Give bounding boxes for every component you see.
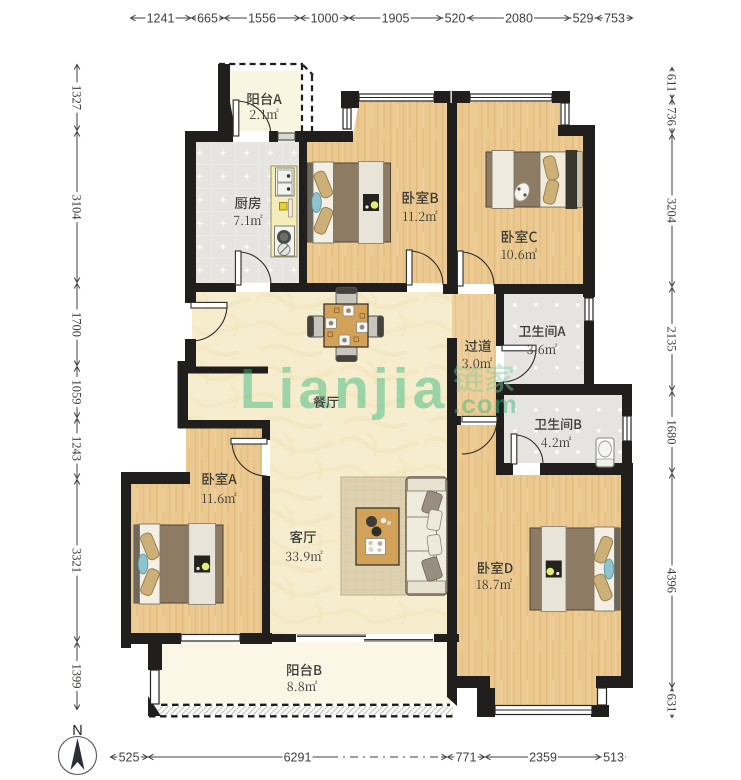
svg-text:Lianjia: Lianjia bbox=[240, 357, 449, 421]
svg-text:611: 611 bbox=[665, 74, 679, 92]
svg-text:1399: 1399 bbox=[70, 664, 84, 689]
svg-text:3321: 3321 bbox=[70, 548, 84, 573]
svg-text:529: 529 bbox=[573, 12, 594, 26]
svg-text:1243: 1243 bbox=[70, 436, 84, 461]
svg-text:.com: .com bbox=[453, 389, 518, 419]
svg-text:771: 771 bbox=[456, 751, 477, 765]
svg-text:1680: 1680 bbox=[665, 420, 679, 445]
svg-text:1241: 1241 bbox=[147, 12, 175, 26]
svg-text:1905: 1905 bbox=[382, 12, 410, 26]
svg-text:3204: 3204 bbox=[665, 198, 679, 224]
svg-text:1556: 1556 bbox=[248, 12, 276, 26]
svg-text:1059: 1059 bbox=[70, 380, 84, 405]
svg-text:6291: 6291 bbox=[284, 751, 312, 765]
svg-text:2359: 2359 bbox=[529, 751, 557, 765]
svg-text:631: 631 bbox=[665, 694, 679, 713]
svg-text:4396: 4396 bbox=[665, 568, 679, 593]
svg-text:2080: 2080 bbox=[505, 12, 533, 26]
svg-text:513: 513 bbox=[603, 751, 624, 765]
svg-text:665: 665 bbox=[197, 12, 218, 26]
svg-text:2135: 2135 bbox=[665, 327, 679, 352]
svg-text:753: 753 bbox=[604, 12, 625, 26]
svg-text:525: 525 bbox=[119, 751, 140, 765]
svg-text:1000: 1000 bbox=[311, 12, 339, 26]
svg-text:736: 736 bbox=[665, 107, 679, 126]
svg-text:N: N bbox=[72, 723, 82, 739]
svg-text:1700: 1700 bbox=[70, 312, 84, 337]
svg-text:1327: 1327 bbox=[70, 85, 84, 110]
svg-text:3104: 3104 bbox=[70, 195, 84, 221]
svg-text:520: 520 bbox=[445, 12, 466, 26]
